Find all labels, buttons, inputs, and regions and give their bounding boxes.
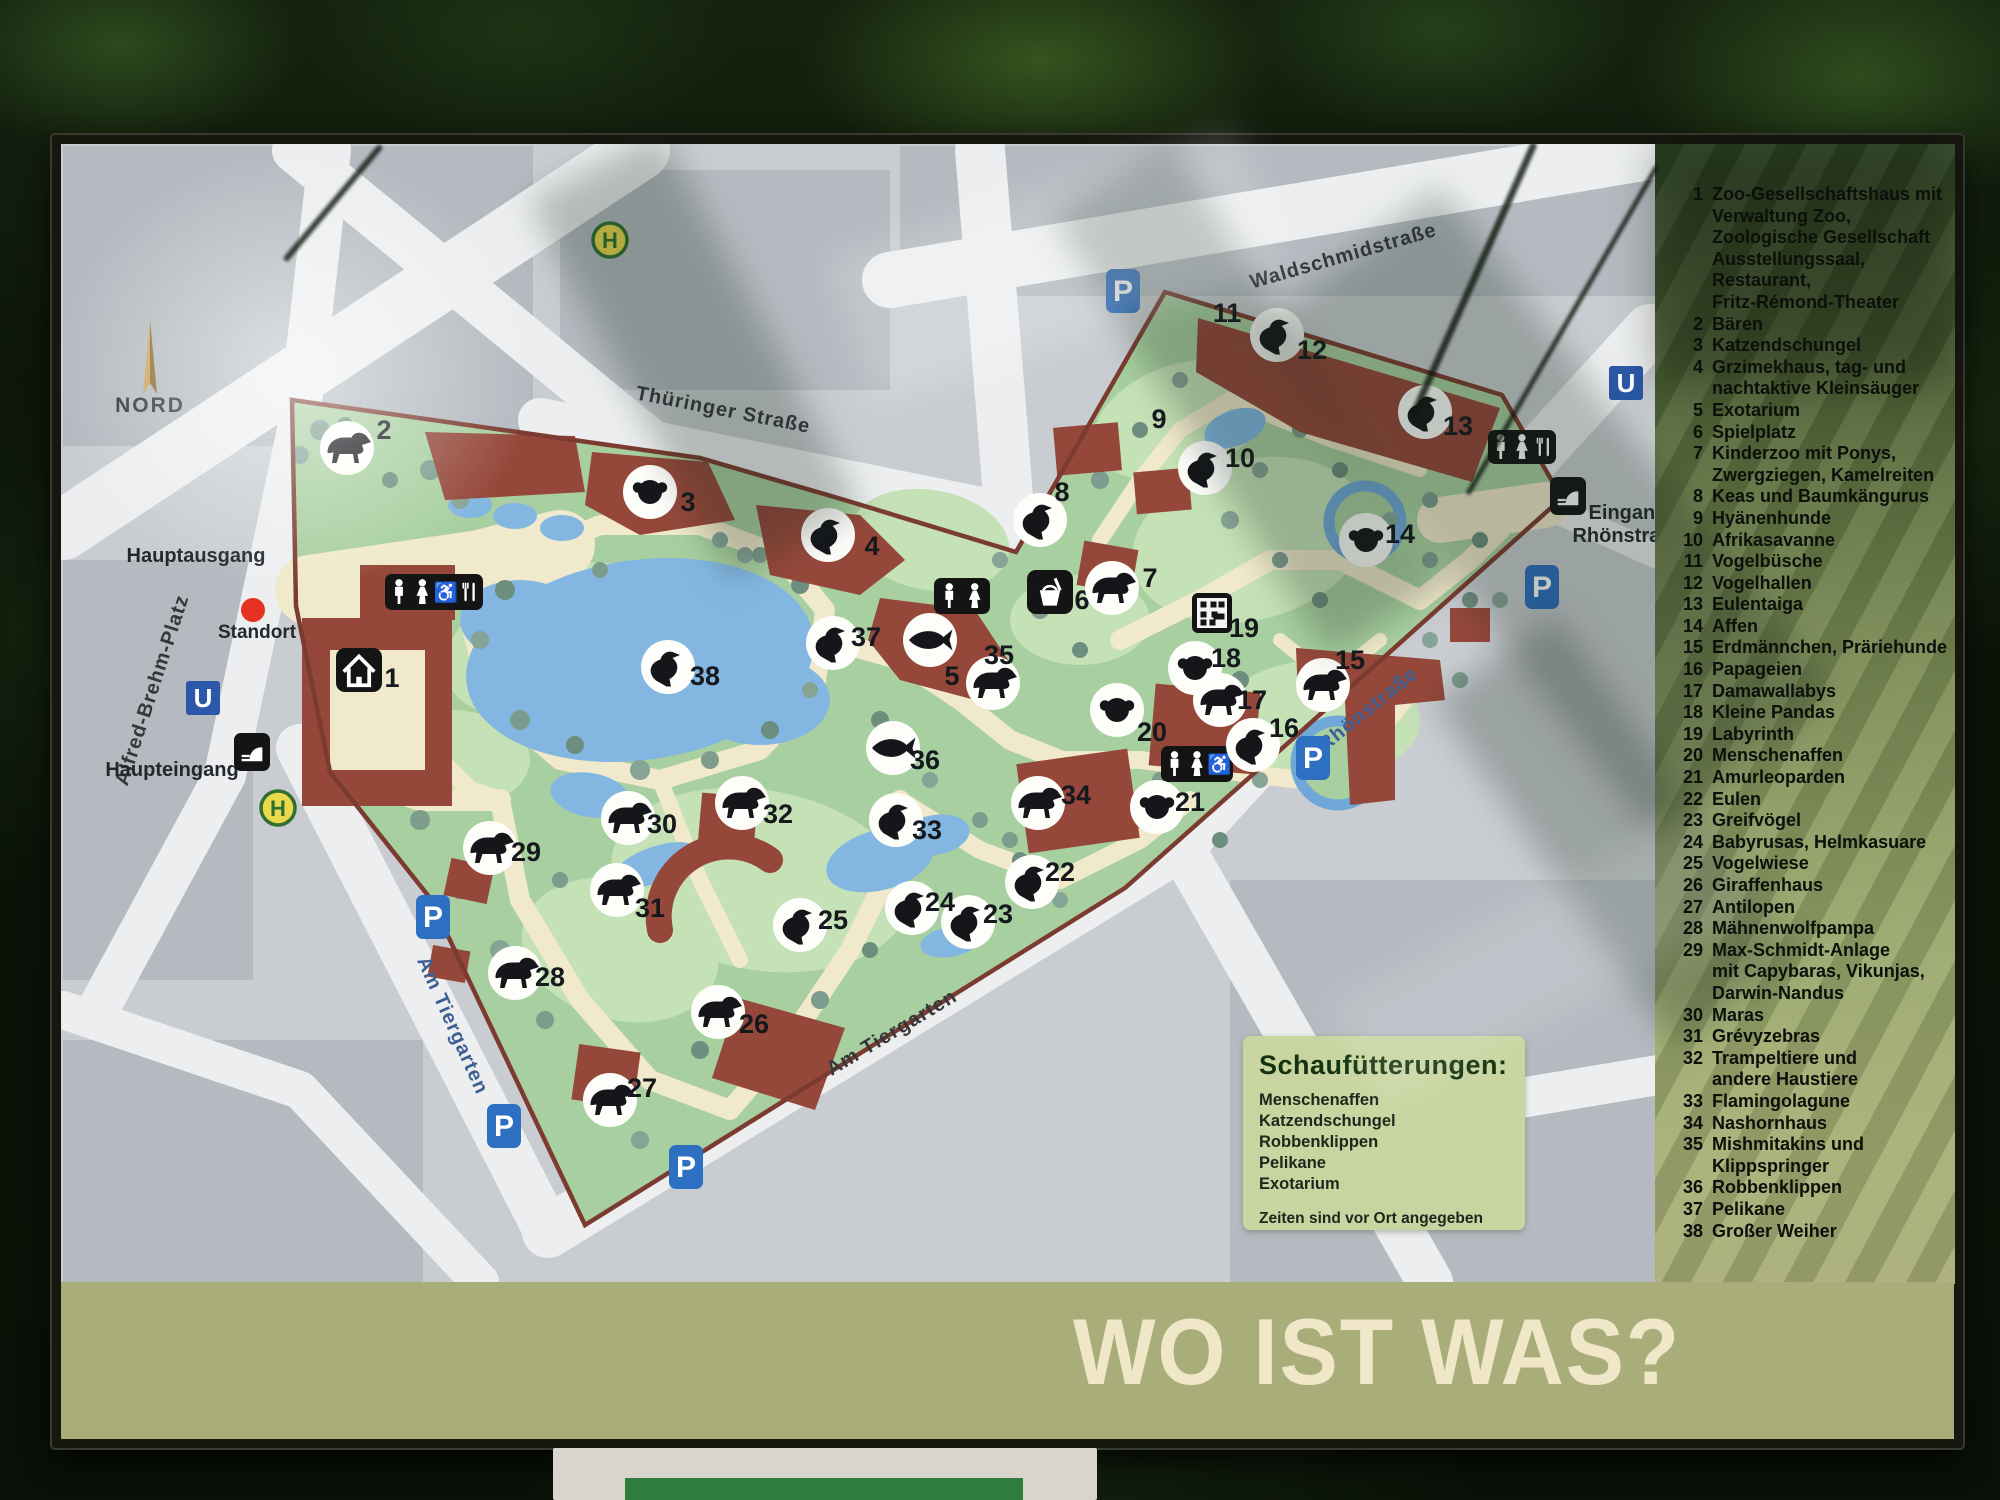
marker-number-16: 16 — [1269, 713, 1299, 743]
legend-item-2: 2Bären — [1669, 314, 1947, 336]
legend-item-number: 36 — [1669, 1177, 1712, 1199]
marker-number-23: 23 — [983, 899, 1013, 929]
legend-item-10: 10Afrikasavanne — [1669, 530, 1947, 552]
marker-number-19: 19 — [1229, 613, 1259, 643]
svg-text:P: P — [1303, 742, 1323, 775]
legend-item-5: 5Exotarium — [1669, 400, 1947, 422]
facility-wc-restaurant-main: ♿ — [385, 574, 483, 610]
legend-item-9: 9Hyänenhunde — [1669, 508, 1947, 530]
legend-item-number: 8 — [1669, 486, 1712, 508]
legend-item-18: 18Kleine Pandas — [1669, 702, 1947, 724]
svg-text:U: U — [194, 683, 213, 713]
legend-item-text: Flamingolagune — [1712, 1091, 1850, 1113]
svg-text:H: H — [602, 228, 618, 253]
legend-item-number: 29 — [1669, 940, 1712, 1005]
label-haupteingang: Haupteingang — [105, 759, 238, 781]
feeding-item: Katzendschungel — [1259, 1111, 1509, 1132]
parking-icon: P — [669, 1145, 703, 1189]
legend-item-17: 17Damawallabys — [1669, 681, 1947, 703]
legend-item-number: 26 — [1669, 875, 1712, 897]
marker-number-28: 28 — [535, 962, 565, 992]
legend-item-number: 17 — [1669, 681, 1712, 703]
legend-item-number: 35 — [1669, 1134, 1712, 1177]
feeding-item: Menschenaffen — [1259, 1090, 1509, 1111]
marker-number-4: 4 — [864, 531, 879, 561]
facility-tor-ost — [1550, 477, 1586, 515]
legend-item-text: Menschenaffen — [1712, 745, 1843, 767]
svg-text:P: P — [1113, 275, 1133, 308]
legend-item-30: 30Maras — [1669, 1005, 1947, 1027]
bus-stop-icon: H — [593, 223, 627, 257]
legend-item-text: Afrikasavanne — [1712, 530, 1835, 552]
legend-item-text: Amurleoparden — [1712, 767, 1845, 789]
legend-item-24: 24Babyrusas, Helmkasuare — [1669, 832, 1947, 854]
legend-item-number: 13 — [1669, 594, 1712, 616]
legend-item-1: 1Zoo-Gesellschaftshaus mitVerwaltung Zoo… — [1669, 184, 1947, 314]
legend-item-26: 26Giraffenhaus — [1669, 875, 1947, 897]
legend-item-number: 10 — [1669, 530, 1712, 552]
legend-item-text: Keas und Baumkängurus — [1712, 486, 1929, 508]
marker-number-36: 36 — [910, 745, 940, 775]
legend-item-text: Bären — [1712, 314, 1763, 336]
marker-number-15: 15 — [1335, 645, 1365, 675]
legend-item-number: 14 — [1669, 616, 1712, 638]
legend-item-number: 38 — [1669, 1221, 1712, 1243]
svg-text:Standort: Standort — [218, 622, 297, 643]
legend-item-21: 21Amurleoparden — [1669, 767, 1947, 789]
legend-item-number: 12 — [1669, 573, 1712, 595]
legend-item-text: Damawallabys — [1712, 681, 1836, 703]
legend-item-number: 27 — [1669, 897, 1712, 919]
svg-text:P: P — [1532, 571, 1552, 604]
marker-11: 11 — [1213, 298, 1242, 328]
sign-title: WO IST WAS? — [1073, 1298, 1681, 1406]
legend-item-text: Babyrusas, Helmkasuare — [1712, 832, 1926, 854]
legend-item-text: Kleine Pandas — [1712, 702, 1835, 724]
legend-item-number: 5 — [1669, 400, 1712, 422]
bus-stop-icon: H — [261, 791, 295, 825]
svg-text:P: P — [423, 901, 443, 934]
legend-item-33: 33Flamingolagune — [1669, 1091, 1947, 1113]
svg-text:♿: ♿ — [434, 581, 458, 604]
legend-item-11: 11Vogelbüsche — [1669, 551, 1947, 573]
marker-number-35: 35 — [984, 640, 1014, 670]
marker-number-34: 34 — [1061, 780, 1091, 810]
legend-item-text: Hyänenhunde — [1712, 508, 1831, 530]
svg-text:P: P — [494, 1110, 514, 1143]
marker-number-30: 30 — [647, 809, 677, 839]
legend-item-number: 24 — [1669, 832, 1712, 854]
legend-item-text: Nashornhaus — [1712, 1113, 1827, 1135]
legend-item-text: Eulen — [1712, 789, 1761, 811]
legend-item-text: Mähnenwolfpampa — [1712, 918, 1874, 940]
legend-item-number: 9 — [1669, 508, 1712, 530]
legend-item-number: 25 — [1669, 853, 1712, 875]
legend-item-27: 27Antilopen — [1669, 897, 1947, 919]
parking-icon: P — [1106, 269, 1140, 313]
legend-item-text: Vogelbüsche — [1712, 551, 1823, 573]
legend-item-20: 20Menschenaffen — [1669, 745, 1947, 767]
marker-number-32: 32 — [763, 799, 793, 829]
legend-item-22: 22Eulen — [1669, 789, 1947, 811]
legend-item-text: Labyrinth — [1712, 724, 1794, 746]
legend-item-text: Kinderzoo mit Ponys,Zwergziegen, Kamelre… — [1712, 443, 1934, 486]
marker-number-5: 5 — [944, 661, 959, 691]
parking-icon: P — [1296, 736, 1330, 780]
legend-item-29: 29Max-Schmidt-Anlagemit Capybaras, Vikun… — [1669, 940, 1947, 1005]
legend-item-text: Erdmännchen, Präriehunde — [1712, 637, 1947, 659]
legend-item-number: 33 — [1669, 1091, 1712, 1113]
legend-item-28: 28Mähnenwolfpampa — [1669, 918, 1947, 940]
legend-item-text: Papageien — [1712, 659, 1802, 681]
marker-number-2: 2 — [376, 415, 391, 445]
legend-item-text: Antilopen — [1712, 897, 1795, 919]
legend-item-text: Max-Schmidt-Anlagemit Capybaras, Vikunja… — [1712, 940, 1925, 1005]
legend-item-number: 22 — [1669, 789, 1712, 811]
marker-number-10: 10 — [1225, 443, 1255, 473]
legend-item-37: 37Pelikane — [1669, 1199, 1947, 1221]
feeding-box-note: Zeiten sind vor Ort angegeben — [1259, 1210, 1509, 1228]
legend-item-36: 36Robbenklippen — [1669, 1177, 1947, 1199]
legend-item-number: 37 — [1669, 1199, 1712, 1221]
marker-number-38: 38 — [690, 661, 720, 691]
legend-item-number: 31 — [1669, 1026, 1712, 1048]
marker-number-11: 11 — [1213, 298, 1242, 328]
legend-item-number: 32 — [1669, 1048, 1712, 1091]
marker-number-25: 25 — [818, 905, 848, 935]
legend-item-31: 31Grévyzebras — [1669, 1026, 1947, 1048]
facility-wc-exotarium — [934, 578, 990, 614]
legend-item-number: 18 — [1669, 702, 1712, 724]
marker-number-17: 17 — [1237, 685, 1267, 715]
facility-tor-haupteingang — [234, 733, 270, 771]
marker-number-13: 13 — [1443, 411, 1473, 441]
marker-9: 9 — [1151, 404, 1166, 434]
parking-icon: P — [1525, 565, 1559, 609]
marker-number-8: 8 — [1054, 477, 1069, 507]
marker-number-7: 7 — [1142, 563, 1157, 593]
legend-item-19: 19Labyrinth — [1669, 724, 1947, 746]
legend-item-text: Katzendschungel — [1712, 335, 1861, 357]
feeding-times-box: Schaufütterungen: MenschenaffenKatzendsc… — [1243, 1036, 1525, 1230]
legend-panel: 1Zoo-Gesellschaftshaus mitVerwaltung Zoo… — [1655, 144, 1955, 1284]
parking-icon: P — [487, 1104, 521, 1148]
legend-item-text: Grzimekhaus, tag- undnachtaktive Kleinsä… — [1712, 357, 1919, 400]
feeding-item: Pelikane — [1259, 1153, 1509, 1174]
legend-item-number: 30 — [1669, 1005, 1712, 1027]
plaque-green-bar — [625, 1478, 1023, 1500]
marker-number-21: 21 — [1175, 787, 1205, 817]
svg-text:P: P — [676, 1151, 696, 1184]
legend-item-38: 38Großer Weiher — [1669, 1221, 1947, 1243]
legend-item-number: 28 — [1669, 918, 1712, 940]
ubahn-icon: U — [186, 681, 220, 715]
legend-item-number: 15 — [1669, 637, 1712, 659]
legend-item-text: Maras — [1712, 1005, 1764, 1027]
legend-item-13: 13Eulentaiga — [1669, 594, 1947, 616]
feeding-box-title: Schaufütterungen: — [1259, 1050, 1509, 1081]
legend-item-8: 8Keas und Baumkängurus — [1669, 486, 1947, 508]
legend-item-3: 3Katzendschungel — [1669, 335, 1947, 357]
legend-item-text: Spielplatz — [1712, 422, 1796, 444]
marker-number-29: 29 — [511, 837, 541, 867]
legend-item-text: Trampeltiere undandere Haustiere — [1712, 1048, 1858, 1091]
feeding-item: Exotarium — [1259, 1174, 1509, 1195]
marker-number-24: 24 — [925, 887, 955, 917]
post-plaque — [553, 1448, 1097, 1500]
legend-item-text: Greifvögel — [1712, 810, 1801, 832]
legend-item-number: 6 — [1669, 422, 1712, 444]
marker-number-33: 33 — [912, 815, 942, 845]
feeding-box-items: MenschenaffenKatzendschungelRobbenklippe… — [1259, 1090, 1509, 1195]
marker-number-18: 18 — [1211, 643, 1241, 673]
legend-item-number: 4 — [1669, 357, 1712, 400]
marker-number-14: 14 — [1385, 519, 1415, 549]
legend-item-14: 14Affen — [1669, 616, 1947, 638]
legend-item-text: Großer Weiher — [1712, 1221, 1837, 1243]
standort-dot — [241, 598, 265, 622]
facility-wc-sued: ♿ — [1161, 746, 1233, 782]
legend-item-number: 34 — [1669, 1113, 1712, 1135]
ubahn-icon: U — [1609, 366, 1643, 400]
legend-item-7: 7Kinderzoo mit Ponys,Zwergziegen, Kamelr… — [1669, 443, 1947, 486]
legend-item-text: Eulentaiga — [1712, 594, 1803, 616]
marker-number-26: 26 — [739, 1009, 769, 1039]
legend-item-number: 11 — [1669, 551, 1712, 573]
label-hauptausgang: Hauptausgang — [127, 545, 266, 567]
legend-items: 1Zoo-Gesellschaftshaus mitVerwaltung Zoo… — [1669, 184, 1947, 1242]
legend-item-text: Vogelhallen — [1712, 573, 1812, 595]
svg-text:NORD: NORD — [115, 394, 185, 417]
feeding-item: Robbenklippen — [1259, 1132, 1509, 1153]
legend-item-23: 23Greifvögel — [1669, 810, 1947, 832]
legend-item-text: Exotarium — [1712, 400, 1800, 422]
legend-item-number: 19 — [1669, 724, 1712, 746]
marker-number-22: 22 — [1045, 857, 1075, 887]
legend-item-number: 2 — [1669, 314, 1712, 336]
legend-item-text: Giraffenhaus — [1712, 875, 1823, 897]
legend-item-16: 16Papageien — [1669, 659, 1947, 681]
legend-item-text: Robbenklippen — [1712, 1177, 1842, 1199]
legend-item-12: 12Vogelhallen — [1669, 573, 1947, 595]
legend-item-text: Grévyzebras — [1712, 1026, 1820, 1048]
legend-item-number: 16 — [1669, 659, 1712, 681]
legend-item-text: Vogelwiese — [1712, 853, 1809, 875]
legend-item-number: 23 — [1669, 810, 1712, 832]
legend-item-text: Affen — [1712, 616, 1758, 638]
marker-number-20: 20 — [1137, 717, 1167, 747]
legend-item-6: 6Spielplatz — [1669, 422, 1947, 444]
legend-item-number: 21 — [1669, 767, 1712, 789]
legend-item-number: 1 — [1669, 184, 1712, 314]
legend-item-32: 32Trampeltiere undandere Haustiere — [1669, 1048, 1947, 1091]
marker-number-37: 37 — [851, 622, 881, 652]
parking-icon: P — [416, 895, 450, 939]
marker-number-31: 31 — [635, 893, 665, 923]
marker-number-9: 9 — [1151, 404, 1166, 434]
legend-item-text: Mishmitakins undKlippspringer — [1712, 1134, 1864, 1177]
title-band: WO IST WAS? — [61, 1282, 1954, 1439]
svg-text:♿: ♿ — [1207, 753, 1231, 776]
legend-item-text: Zoo-Gesellschaftshaus mitVerwaltung Zoo,… — [1712, 184, 1942, 314]
legend-item-text: Pelikane — [1712, 1199, 1785, 1221]
marker-number-12: 12 — [1297, 335, 1327, 365]
legend-item-34: 34Nashornhaus — [1669, 1113, 1947, 1135]
svg-text:U: U — [1617, 368, 1636, 398]
legend-item-15: 15Erdmännchen, Präriehunde — [1669, 637, 1947, 659]
legend-item-number: 3 — [1669, 335, 1712, 357]
legend-item-35: 35Mishmitakins undKlippspringer — [1669, 1134, 1947, 1177]
legend-item-number: 20 — [1669, 745, 1712, 767]
legend-item-25: 25Vogelwiese — [1669, 853, 1947, 875]
marker-number-27: 27 — [627, 1073, 657, 1103]
marker-number-3: 3 — [680, 487, 695, 517]
marker-number-1: 1 — [384, 663, 399, 693]
legend-item-4: 4Grzimekhaus, tag- undnachtaktive Kleins… — [1669, 357, 1947, 400]
svg-text:H: H — [270, 796, 286, 821]
legend-item-number: 7 — [1669, 443, 1712, 486]
